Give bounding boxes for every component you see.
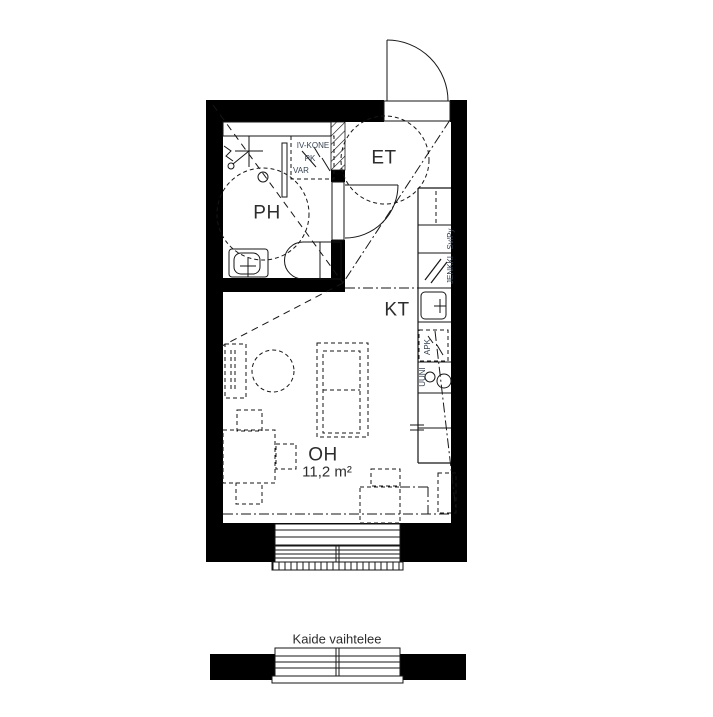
window-balcony: [272, 524, 403, 570]
sink-icon: [421, 292, 446, 319]
bulkhead-band: [223, 122, 331, 136]
armchair: [225, 344, 246, 398]
doors: [332, 40, 450, 240]
kitchen-label-sv-py: Sv/Py: [447, 229, 455, 250]
round-table: [252, 350, 294, 392]
balcony-edge-hatch: [272, 562, 403, 570]
window: [275, 524, 400, 545]
closet-label-pk: PK: [305, 155, 316, 163]
kitchen-label-apk: APK: [424, 339, 432, 355]
kitchen-counter: [410, 188, 451, 463]
bed: [317, 343, 368, 437]
room-label-ph: PH: [253, 204, 280, 223]
bathroom-door-frame: [332, 182, 344, 240]
partition-wall: [282, 143, 287, 197]
dining-set: [223, 410, 296, 504]
kitchen-label-uuni: UUNI: [419, 367, 427, 387]
balcony-detail: [210, 648, 466, 683]
balcony-railing: [275, 546, 400, 562]
balcony-note: Kaide vaihtelee: [293, 633, 382, 646]
railing-detail: [275, 648, 400, 676]
fridge-lightning-icon: [425, 259, 447, 283]
toilet-icon: [229, 249, 268, 277]
room-area-oh: 11,2 m²: [302, 465, 352, 480]
stove-icon: [425, 372, 451, 388]
floor-plan-drawing: [0, 0, 713, 717]
shower-icon: [224, 136, 263, 169]
desk-chair: [360, 469, 400, 523]
hatched-wall-strip: [331, 122, 345, 170]
railing-base-strip: [272, 676, 403, 683]
kitchen-label-jenkki: JENKKI: [447, 256, 455, 284]
entry-door-swing-arc: [387, 40, 448, 101]
room-label-kt: KT: [384, 301, 409, 320]
room-label-et: ET: [371, 149, 396, 168]
closet-label-iv-kone: IV-KONE: [297, 142, 329, 150]
entry-door-threshold: [384, 101, 450, 121]
floor-plan-canvas: PH ET KT OH 11,2 m² IV-KONE PK VAR Sv/Py…: [0, 0, 713, 717]
room-label-oh: OH: [308, 446, 338, 465]
closet-label-var: VAR: [293, 167, 309, 175]
